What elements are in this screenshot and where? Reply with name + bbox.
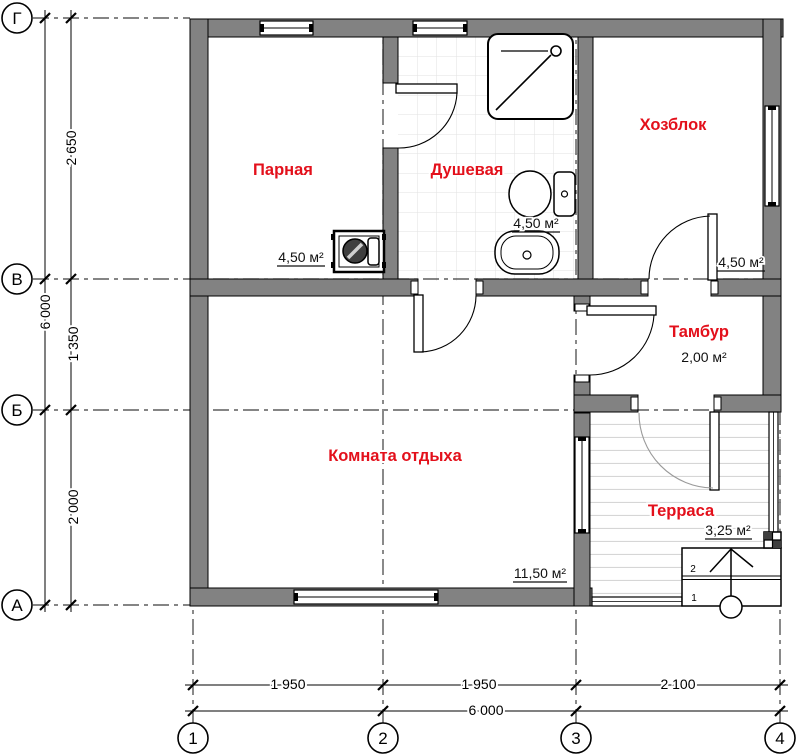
door-jambs bbox=[411, 281, 721, 410]
axis-bubble-4: 4 bbox=[775, 729, 784, 748]
axis-bubble-g: Г bbox=[12, 9, 21, 28]
corner-post-icon bbox=[764, 532, 781, 548]
room-label-terrasa: Терраса bbox=[648, 502, 715, 520]
jamb bbox=[575, 375, 589, 382]
wall-row-v-left bbox=[190, 279, 418, 296]
area-label-tambur: 2,00 м² bbox=[681, 349, 727, 365]
dim-bottom-segment-1: 1 950 bbox=[270, 676, 305, 692]
jamb bbox=[641, 281, 648, 294]
wall-exterior-east bbox=[763, 19, 781, 412]
window-parnaya-north bbox=[260, 21, 313, 35]
window-komnata-south bbox=[294, 590, 438, 604]
axis-bubble-v: В bbox=[11, 270, 22, 289]
wall-row-b-right bbox=[714, 395, 781, 412]
terrace-railing-east bbox=[769, 412, 778, 532]
area-label-parnaya: 4,50 м² bbox=[278, 249, 324, 265]
jamb bbox=[631, 397, 638, 410]
stove-icon bbox=[331, 231, 386, 272]
dim-bottom-segment-2: 1 950 bbox=[461, 676, 496, 692]
step-number-2: 2 bbox=[690, 564, 696, 575]
room-label-komnata-otdyha: Комната отдыха bbox=[328, 447, 462, 465]
floor-plan-page: 2 1 bbox=[0, 0, 800, 756]
axis-bubble-a: А bbox=[11, 596, 23, 615]
toilet-icon bbox=[509, 171, 575, 217]
area-label-dushevaya: 4,50 м² bbox=[513, 215, 559, 231]
axis-bubble-3: 3 bbox=[571, 729, 580, 748]
area-label-terrasa: 3,25 м² bbox=[705, 522, 751, 538]
terrace-railing-south bbox=[592, 597, 682, 606]
wall-row-b-left bbox=[574, 395, 638, 412]
wall-parnaya-dushevaya-upper bbox=[383, 37, 398, 83]
room-label-hozblok: Хозблок bbox=[640, 116, 708, 134]
jamb bbox=[411, 281, 418, 294]
sink-icon bbox=[495, 231, 559, 274]
column-icon bbox=[720, 596, 742, 618]
dim-left-segment-3: 2 000 bbox=[65, 489, 81, 524]
step-number-1: 1 bbox=[691, 593, 697, 604]
door-komnata-tambur bbox=[587, 306, 656, 375]
window-komnata-terrace bbox=[575, 437, 589, 533]
room-label-tambur: Тамбур bbox=[669, 323, 729, 341]
jamb bbox=[711, 281, 718, 294]
window-dushevaya-north bbox=[413, 21, 467, 35]
dim-left-segment-2: 1 350 bbox=[65, 326, 81, 361]
jamb bbox=[476, 281, 483, 294]
jamb bbox=[714, 397, 721, 410]
terrace-steps: 2 1 bbox=[682, 548, 781, 618]
axis-bubble-2: 2 bbox=[378, 729, 387, 748]
dim-bottom-segment-3: 2 100 bbox=[660, 676, 695, 692]
room-label-parnaya: Парная bbox=[253, 161, 313, 179]
dim-bottom-total: 6 000 bbox=[468, 702, 503, 718]
wall-exterior-west bbox=[190, 19, 208, 606]
wall-row-v-right bbox=[711, 279, 781, 296]
room-label-dushevaya: Душевая bbox=[431, 161, 504, 179]
area-label-hozblok: 4,50 м² bbox=[718, 254, 764, 270]
area-label-komnata-otdyha: 11,50 м² bbox=[514, 565, 567, 581]
axis-bubble-1: 1 bbox=[188, 729, 197, 748]
window-hozblok-east bbox=[765, 106, 779, 206]
dim-left-segment-1: 2 650 bbox=[63, 130, 79, 165]
dim-left-total: 6 000 bbox=[37, 294, 53, 329]
wall-dushevaya-hozblok bbox=[578, 37, 593, 281]
door-dushevaya-komnata bbox=[414, 295, 476, 352]
wall-row-v-middle bbox=[476, 279, 648, 296]
door-hozblok-tambur bbox=[649, 214, 717, 280]
axis-bubble-b: Б bbox=[11, 401, 22, 420]
floor-plan-drawing: 2 1 bbox=[0, 0, 800, 756]
shower-tray-icon bbox=[488, 34, 573, 119]
